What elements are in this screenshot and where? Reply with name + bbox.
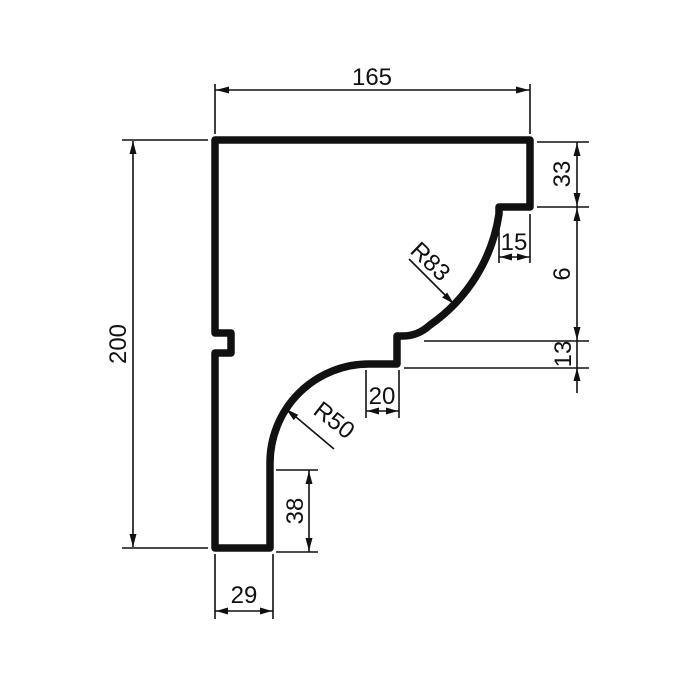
arrowhead-up-icon xyxy=(574,208,581,221)
radius-label-lower: R50 xyxy=(308,396,359,444)
dim-label-leg: 38 xyxy=(282,498,309,525)
leader-radius-lower: R50 xyxy=(286,396,360,449)
profile-outline xyxy=(215,140,530,548)
arrowhead-up-icon xyxy=(306,471,313,484)
arrowhead-down-icon xyxy=(130,534,137,547)
dim-label-width: 165 xyxy=(352,64,392,91)
dim-label-ledge: 13 xyxy=(550,341,577,368)
dim-step: 15 xyxy=(499,214,530,263)
dim-label-base: 29 xyxy=(231,582,258,609)
dim-label-step: 15 xyxy=(501,229,528,256)
drawing-canvas: 165 200 33 6 13 15 xyxy=(0,0,686,686)
arrowhead-up-icon xyxy=(574,368,581,381)
arrowhead-left-icon xyxy=(216,87,229,94)
arrowhead-down-icon xyxy=(574,327,581,340)
dim-label-top-right: 33 xyxy=(549,161,576,188)
dim-top-right: 33 xyxy=(537,142,589,207)
dim-base: 29 xyxy=(215,554,273,619)
arrowhead-down-icon xyxy=(574,193,581,206)
arrowhead-right-icon xyxy=(516,87,529,94)
arrowhead-down-icon xyxy=(306,538,313,551)
dim-height: 200 xyxy=(105,140,208,548)
dim-label-mid-right: 6 xyxy=(549,267,576,280)
technical-drawing: 165 200 33 6 13 15 xyxy=(0,0,686,686)
arrowhead-up-icon xyxy=(130,141,137,154)
radius-label-upper: R83 xyxy=(405,237,455,287)
leader-radius-upper: R83 xyxy=(405,237,455,304)
arrowhead-left-icon xyxy=(216,608,228,615)
dim-leg: 38 xyxy=(276,470,318,552)
arrowhead-up-icon xyxy=(574,143,581,156)
dim-label-run: 20 xyxy=(369,383,396,410)
dim-ledge: 13 xyxy=(404,341,589,393)
arrowhead-diagonal-icon xyxy=(286,409,298,420)
arrowhead-right-icon xyxy=(260,608,272,615)
dim-width: 165 xyxy=(215,64,530,134)
dim-label-height: 200 xyxy=(105,324,132,364)
dim-run: 20 xyxy=(366,370,399,418)
